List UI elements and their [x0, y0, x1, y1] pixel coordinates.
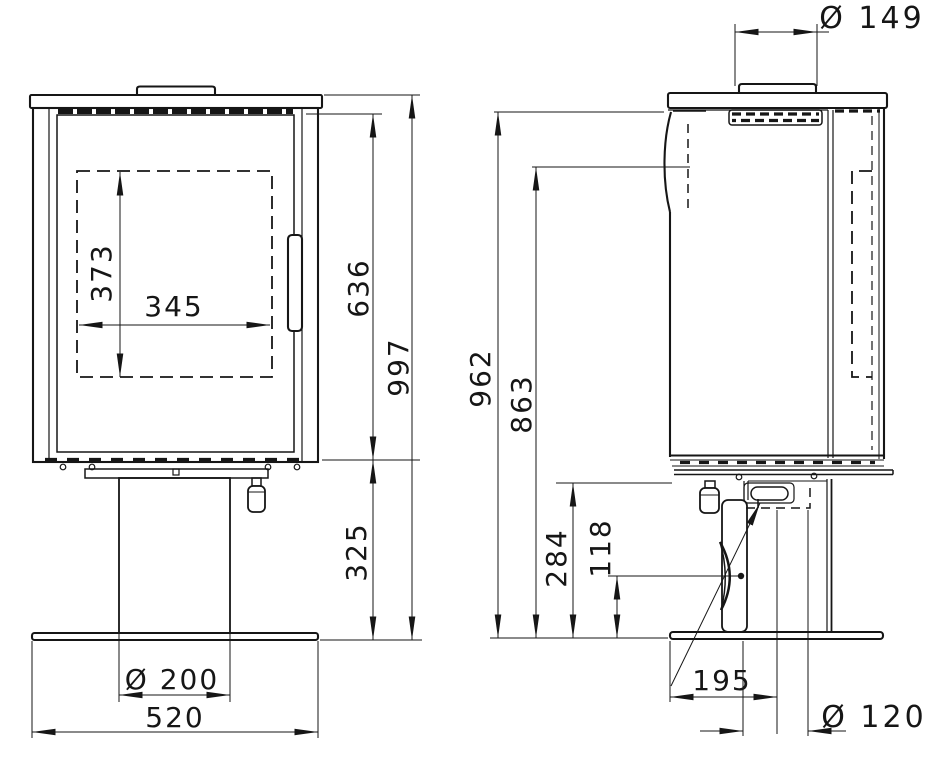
dim-label-total-height: 997 [382, 337, 415, 396]
dim-label-glass-height: 373 [85, 243, 118, 302]
side-view-drawing [664, 84, 893, 686]
side-lever-pivot [738, 573, 744, 579]
stove-dimension-drawing: 373 345 636 997 325 Ø 200 520 [0, 0, 933, 764]
dim-label-lever-height: 118 [584, 518, 617, 577]
dim-label-flue-offset: 195 [692, 664, 751, 697]
front-base-plate [32, 633, 318, 640]
dim-label-flue-diameter: Ø 149 [819, 1, 924, 36]
side-air-knob-stem [705, 481, 715, 488]
dim-label-outlet-height: 863 [505, 374, 538, 433]
side-top-grille [729, 110, 822, 125]
front-pedestal-column [119, 478, 230, 633]
side-flue-collar [739, 84, 816, 93]
dim-label-base-width: 520 [145, 701, 204, 734]
technical-drawing-page: 373 345 636 997 325 Ø 200 520 [0, 0, 933, 764]
front-flue-collar [137, 87, 215, 96]
front-door-handle [288, 235, 302, 331]
side-hidden-flue-outline [746, 487, 810, 508]
front-top-plate [30, 95, 322, 108]
dim-label-underbody-height: 284 [540, 528, 573, 587]
side-bottom-vent-pill [751, 487, 788, 500]
front-body [33, 108, 318, 462]
side-air-knob [700, 488, 719, 513]
front-mount-plate [85, 469, 268, 478]
front-view-dimensions: 373 345 636 997 325 Ø 200 520 [32, 95, 422, 738]
dim-label-rear-flue-diameter: Ø 120 [821, 700, 926, 735]
side-front-curve [664, 112, 671, 212]
side-column-front-bracket [722, 500, 747, 632]
front-view-drawing [30, 87, 322, 641]
front-air-knob [248, 486, 265, 512]
dim-label-pedestal-height: 325 [340, 522, 373, 581]
side-window-hidden-outline [852, 171, 872, 377]
dim-label-column-diameter: Ø 200 [125, 663, 219, 696]
dim-label-body-height: 636 [342, 258, 375, 317]
side-top-plate [668, 93, 887, 108]
front-air-knob-stem [252, 478, 261, 486]
dim-label-glass-width: 345 [144, 290, 203, 323]
dim-label-side-total-height: 962 [464, 348, 497, 407]
